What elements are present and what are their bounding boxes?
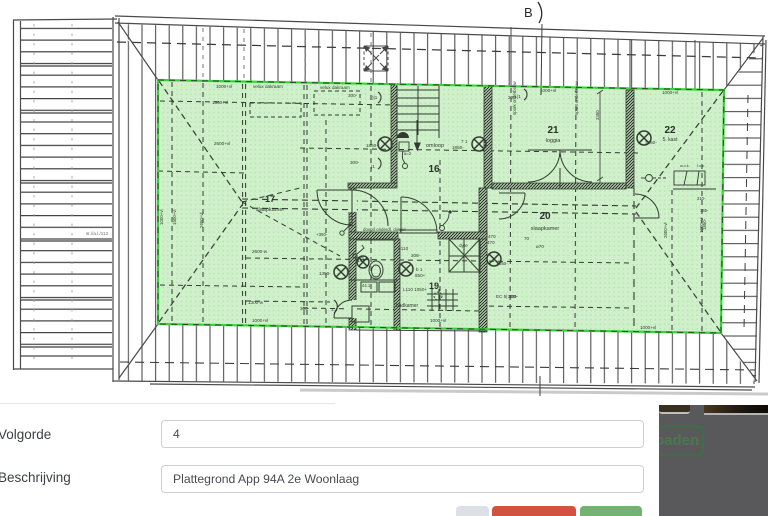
svg-text:st.//a.l./112: st.//a.l./112 bbox=[86, 231, 109, 236]
svg-text:B: B bbox=[524, 5, 533, 20]
